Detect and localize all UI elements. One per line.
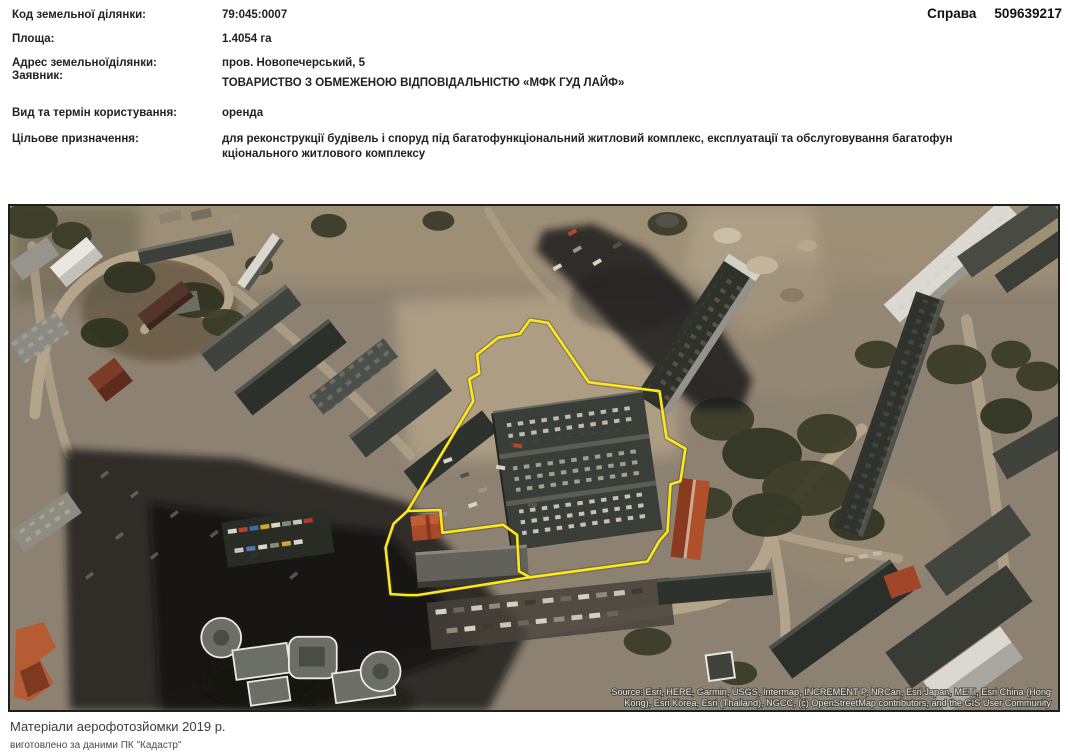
field-label-purpose: Цільове призначення: <box>12 132 139 146</box>
aerial-photo-canvas: Source: Esri, HERE, Garmin, USGS, Interm… <box>10 206 1058 710</box>
attribution-line-2: Kong), Esri Korea, Esri (Thailand), NGCC… <box>624 698 1051 708</box>
field-label-use-term: Вид та термін користування: <box>12 106 177 120</box>
field-label-parcel-code: Код земельної ділянки: <box>12 8 146 22</box>
central-building <box>491 390 663 552</box>
case-header: Справа 509639217 <box>927 6 1062 21</box>
footer-source-line: Матеріали аерофотозйомки 2019 р. <box>10 719 226 734</box>
field-label-address: Адрес земельноїділянки: <box>12 56 157 70</box>
field-value-parcel-code: 79:045:0007 <box>222 8 287 22</box>
field-value-area: 1.4054 га <box>222 32 272 46</box>
case-number: 509639217 <box>994 6 1062 21</box>
field-label-area: Площа: <box>12 32 55 46</box>
attribution-line-1: Source: Esri, HERE, Garmin, USGS, Interm… <box>611 687 1051 697</box>
case-label: Справа <box>927 6 976 21</box>
field-value-address: пров. Новопечерський, 5 <box>222 56 365 70</box>
field-label-applicant: Заявник: <box>12 69 63 83</box>
field-value-purpose-line1: для реконструкції будівель і споруд під … <box>222 132 953 146</box>
footer-produced-line: виготовлено за даними ПК "Кадастр" <box>10 740 182 751</box>
map-attribution: Source: Esri, HERE, Garmin, USGS, Interm… <box>611 687 1051 708</box>
field-value-purpose-line2: кціонального житлового комплексу <box>222 147 425 161</box>
aerial-photo: Source: Esri, HERE, Garmin, USGS, Interm… <box>8 204 1060 712</box>
field-value-applicant: ТОВАРИСТВО З ОБМЕЖЕНОЮ ВІДПОВІДАЛЬНІСТЮ … <box>222 76 624 90</box>
field-value-use-term: оренда <box>222 106 263 120</box>
red-building-notch <box>410 513 442 541</box>
